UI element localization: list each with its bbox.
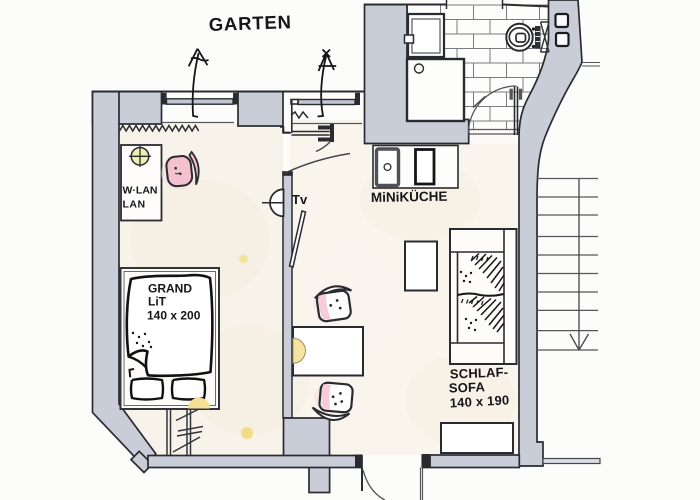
svg-text:MiNiKÜCHE: MiNiKÜCHE <box>371 189 448 205</box>
svg-text:GARTEN: GARTEN <box>208 11 292 35</box>
svg-text:Tv: Tv <box>292 192 308 207</box>
svg-text:LAN: LAN <box>123 199 146 211</box>
svg-text:LiT: LiT <box>148 295 167 309</box>
svg-text:W·LAN: W·LAN <box>123 185 158 197</box>
svg-text:GRAND: GRAND <box>148 282 192 296</box>
svg-text:140 x 190: 140 x 190 <box>449 392 509 410</box>
svg-text:140 x 200: 140 x 200 <box>147 309 201 323</box>
